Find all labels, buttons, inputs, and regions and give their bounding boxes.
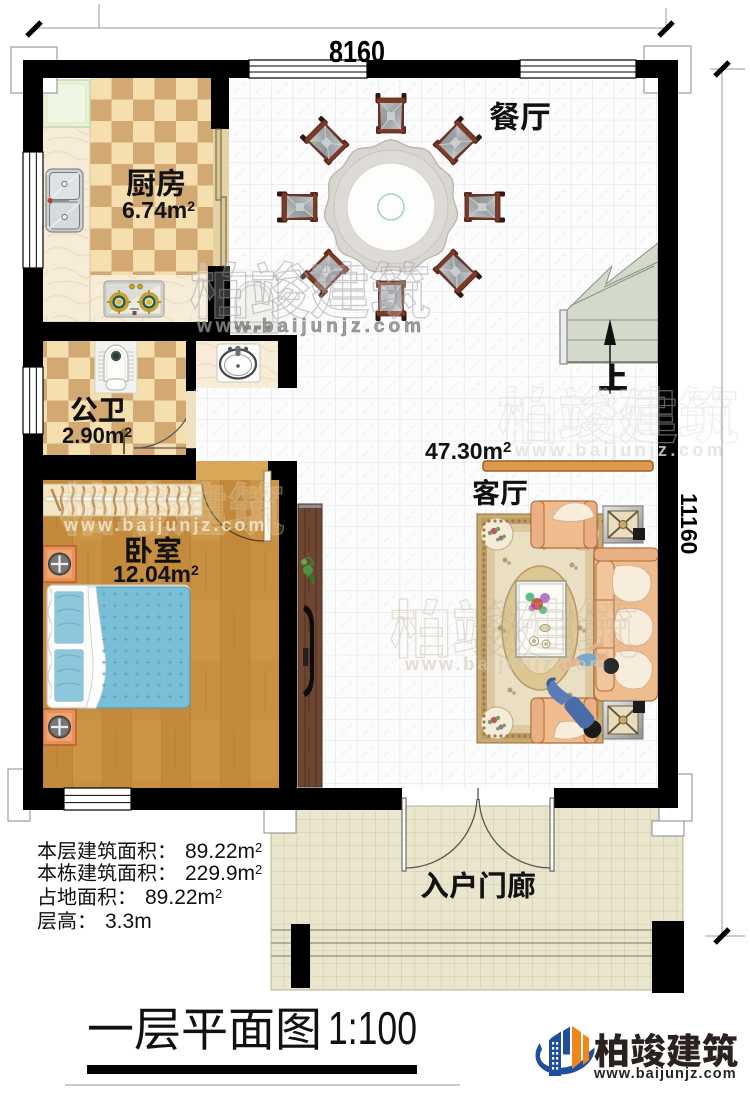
svg-text:11160: 11160 [676,493,702,554]
svg-text:229.9m2: 229.9m2 [185,862,262,885]
svg-text:www.baijunjz.com: www.baijunjz.com [63,515,267,535]
svg-text:47.30m2: 47.30m2 [425,438,511,464]
svg-text:2.90m2: 2.90m2 [62,423,132,448]
svg-text:6.74m2: 6.74m2 [122,197,195,223]
svg-text:89.22m2: 89.22m2 [145,886,222,909]
svg-text:www.baijunjz.com: www.baijunjz.com [404,654,608,674]
svg-text:www.baijunjz.com: www.baijunjz.com [196,316,425,337]
svg-text:www.baijunjz.com: www.baijunjz.com [593,1066,737,1082]
svg-text:89.22m2: 89.22m2 [185,840,262,863]
svg-text:www.baijunjz.com: www.baijunjz.com [514,440,726,460]
svg-text:8160: 8160 [329,34,385,69]
svg-text:12.04m2: 12.04m2 [113,561,199,587]
svg-text:3.3m: 3.3m [105,910,152,933]
svg-text:1:100: 1:100 [328,1002,417,1054]
